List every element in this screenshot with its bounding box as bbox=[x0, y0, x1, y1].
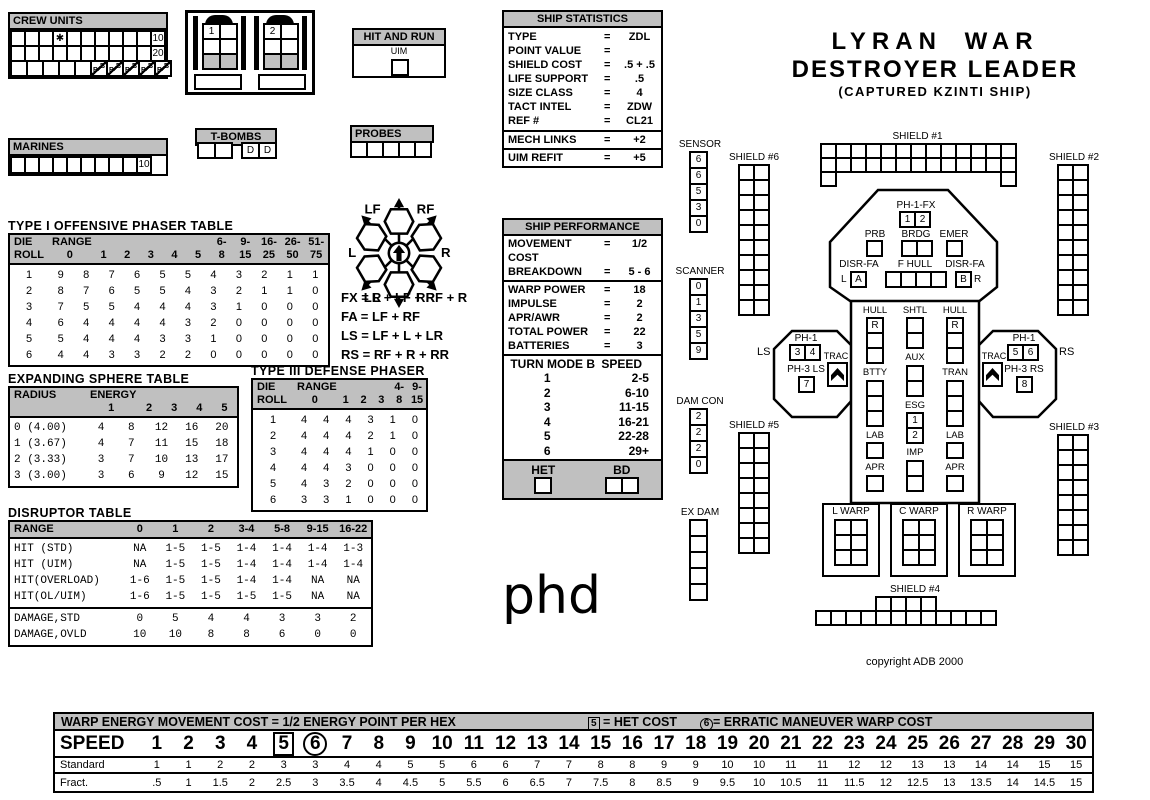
sensor-label: SENSOR bbox=[676, 139, 724, 150]
system-label: IMP bbox=[907, 448, 924, 458]
expanding-sphere-table: RADIUSENERGY123450 (4.00)481216201 (3.67… bbox=[8, 386, 239, 488]
rw-ph3-label: PH-3 RS bbox=[996, 364, 1052, 375]
shield1-label: SHIELD #1 bbox=[850, 131, 985, 142]
system-label: APR bbox=[945, 463, 965, 473]
uim-label: UIM bbox=[354, 46, 444, 56]
shield6-label: SHIELD #6 bbox=[718, 152, 790, 163]
damage-box[interactable] bbox=[1000, 171, 1017, 187]
het-label: HET bbox=[504, 463, 583, 477]
damage-box[interactable] bbox=[930, 271, 947, 288]
damage-box[interactable]: 9 bbox=[689, 342, 708, 360]
dam-con-track: 2220 bbox=[689, 408, 708, 474]
mech-links-row: MECH LINKS=+2 bbox=[504, 130, 661, 148]
ph1fx-label: PH-1-FX bbox=[868, 200, 964, 211]
system-label: HULL bbox=[863, 306, 887, 316]
probes-panel: PROBES bbox=[350, 125, 434, 158]
title-line1: LYRAN WAR bbox=[735, 28, 1135, 56]
system-label: LAB bbox=[866, 431, 884, 441]
shield5-track bbox=[738, 432, 770, 554]
erratic-maneuver-note: 6= ERRATIC MANEUVER WARP COST bbox=[700, 715, 932, 731]
hit-and-run-title: HIT AND RUN bbox=[354, 30, 444, 46]
damage-box[interactable] bbox=[946, 240, 963, 257]
performance-rows-1: MOVEMENT COST=1/2BREAKDOWN=5 - 6 bbox=[504, 236, 661, 280]
speed-header: SPEED bbox=[601, 357, 661, 371]
ssd-sheet: CREW UNITS ✱1020BBBBBBBBBB 1 2 HIT AND R… bbox=[0, 0, 1150, 800]
shuttle-ready-rack bbox=[258, 74, 306, 90]
system-label: LAB bbox=[946, 431, 964, 441]
damage-box[interactable] bbox=[753, 299, 770, 316]
shield3-track bbox=[1057, 434, 1089, 556]
ls-arc-label: LS bbox=[757, 346, 770, 358]
lw-ph3-label: PH-3 LS bbox=[778, 364, 834, 375]
hit-and-run-panel: HIT AND RUN UIM bbox=[352, 28, 446, 78]
ex-dam-track bbox=[689, 519, 708, 601]
disruptor-title: DISRUPTOR TABLE bbox=[8, 506, 132, 520]
performance-rows-2: WARP POWER=18IMPULSE=2APR/AWR=2TOTAL POW… bbox=[504, 280, 661, 354]
system-label: AUX bbox=[905, 353, 925, 363]
t-bombs-track bbox=[197, 142, 233, 159]
crew-units-title: CREW UNITS bbox=[10, 14, 166, 30]
r-warp-track bbox=[970, 519, 1004, 566]
lw-ph1-track: 34 bbox=[789, 344, 821, 361]
rw-ph1-track: 56 bbox=[1007, 344, 1039, 361]
disr-fa-right-track: B bbox=[955, 271, 972, 288]
standard-row: Standard11223344556677889910101111121213… bbox=[55, 758, 1092, 774]
handwritten-note: phd bbox=[502, 566, 601, 626]
title-line3: (CAPTURED KZINTI SHIP) bbox=[735, 84, 1135, 99]
damage-box[interactable]: A bbox=[850, 271, 867, 288]
bay-rail bbox=[254, 16, 259, 70]
warp-cost-note: WARP ENERGY MOVEMENT COST = 1/2 ENERGY P… bbox=[61, 715, 456, 729]
shield4-label: SHIELD #4 bbox=[875, 584, 955, 595]
damage-box[interactable] bbox=[918, 549, 936, 566]
emer-track bbox=[946, 240, 963, 257]
shield2-label: SHIELD #2 bbox=[1038, 152, 1110, 163]
arc-label-l: L bbox=[348, 245, 356, 260]
brdg-track bbox=[901, 240, 933, 257]
marines-title: MARINES bbox=[10, 140, 166, 156]
damage-box[interactable]: 2 bbox=[914, 211, 931, 228]
c-warp-label: C WARP bbox=[892, 506, 946, 517]
damage-box[interactable]: 0 bbox=[689, 215, 708, 233]
damage-box[interactable]: D bbox=[258, 142, 277, 159]
shield1-track bbox=[820, 143, 1017, 187]
scanner-track: 01359 bbox=[689, 278, 708, 360]
damage-box[interactable] bbox=[946, 442, 964, 459]
damage-box[interactable] bbox=[214, 142, 233, 159]
damage-box[interactable] bbox=[906, 475, 924, 492]
rs-arc-label: RS bbox=[1059, 346, 1074, 358]
damage-box[interactable]: 6 bbox=[1022, 344, 1039, 361]
damage-box[interactable]: 7 bbox=[798, 376, 815, 393]
uim-box[interactable] bbox=[391, 59, 409, 76]
damage-box[interactable] bbox=[219, 53, 238, 70]
copyright-text: copyright ADB 2000 bbox=[866, 656, 963, 668]
arc-label-rf: RF bbox=[417, 201, 435, 216]
prb-track bbox=[866, 240, 883, 257]
dam-con-label: DAM CON bbox=[672, 396, 728, 407]
damage-box[interactable] bbox=[850, 549, 868, 566]
tractor-icon bbox=[831, 368, 844, 381]
brdg-label: BRDG bbox=[894, 229, 938, 240]
boxed-5-icon: 5 bbox=[588, 717, 600, 730]
damage-box[interactable] bbox=[1072, 539, 1089, 556]
ship-performance-panel: SHIP PERFORMANCE MOVEMENT COST=1/2BREAKD… bbox=[502, 218, 663, 500]
circled-em-speed: 6 bbox=[303, 732, 327, 756]
damage-box[interactable] bbox=[820, 171, 837, 187]
marines-panel: MARINES 10 bbox=[8, 138, 168, 176]
boxed-het-speed: 5 bbox=[273, 732, 294, 756]
emer-label: EMER bbox=[934, 229, 974, 240]
damage-box[interactable] bbox=[1072, 299, 1089, 316]
formula-rs: RS = RF + R + RR bbox=[341, 345, 467, 364]
lw-ph1-label: PH-1 bbox=[786, 333, 826, 344]
speed-chart: WARP ENERGY MOVEMENT COST = 1/2 ENERGY P… bbox=[53, 712, 1094, 793]
title-line2: DESTROYER LEADER bbox=[735, 56, 1135, 84]
shield3-label: SHIELD #3 bbox=[1038, 422, 1110, 433]
damage-box[interactable] bbox=[916, 240, 933, 257]
damage-box[interactable] bbox=[621, 477, 639, 494]
rw-ph3-track: 8 bbox=[1016, 376, 1033, 393]
damage-box[interactable] bbox=[866, 240, 883, 257]
r-warp-box: R WARP bbox=[958, 503, 1016, 577]
ship-statistics-panel: SHIP STATISTICS TYPE=ZDLPOINT VALUE=SHIE… bbox=[502, 10, 663, 168]
damage-box[interactable] bbox=[946, 410, 964, 427]
damage-box: 10 bbox=[136, 156, 152, 174]
shuttle-ready-rack bbox=[194, 74, 242, 90]
bd-track bbox=[583, 477, 662, 494]
speed-chart-header: WARP ENERGY MOVEMENT COST = 1/2 ENERGY P… bbox=[55, 714, 1092, 731]
damage-box[interactable] bbox=[866, 475, 884, 492]
damage-box[interactable] bbox=[866, 442, 884, 459]
shield6-track bbox=[738, 164, 770, 316]
disr-fa-left-track: A bbox=[850, 271, 867, 288]
het-cost-note: 5 = HET COST bbox=[588, 715, 677, 730]
disr-fa-left-label: DISR-FA bbox=[837, 259, 881, 270]
system-label: HULL bbox=[943, 306, 967, 316]
f-hull-track bbox=[885, 271, 947, 288]
formula-ls: LS = LF + L + LR bbox=[341, 326, 467, 345]
crew-units-panel: CREW UNITS ✱1020BBBBBBBBBB bbox=[8, 12, 168, 79]
phaser3-title: TYPE III DEFENSE PHASER bbox=[251, 364, 425, 378]
damage-box[interactable] bbox=[534, 477, 552, 494]
t-bombs-panel: T-BOMBS DD bbox=[195, 128, 277, 146]
lw-ph3-track: 7 bbox=[798, 376, 815, 393]
bay-rail bbox=[193, 16, 198, 70]
hull-column-left: HULLRBTTYLABAPR bbox=[856, 306, 894, 492]
formula-fx: FX = L + LF + RF + R bbox=[341, 288, 467, 307]
ship-statistics-title: SHIP STATISTICS bbox=[504, 12, 661, 28]
damage-box[interactable] bbox=[866, 410, 884, 427]
ship-statistics-rows: TYPE=ZDLPOINT VALUE=SHIELD COST=.5 + .5L… bbox=[504, 28, 661, 130]
prb-label: PRB bbox=[856, 229, 894, 240]
ship-performance-title: SHIP PERFORMANCE bbox=[504, 220, 661, 236]
shield2-track bbox=[1057, 164, 1089, 316]
damage-box[interactable] bbox=[980, 610, 997, 626]
bd-label: BD bbox=[583, 463, 662, 477]
l-warp-track bbox=[834, 519, 868, 566]
damage-box[interactable] bbox=[946, 475, 964, 492]
disruptor-table: RANGE0123-45-89-1516-22HIT (STD)NA1-51-5… bbox=[8, 520, 373, 647]
rw-ph1-label: PH-1 bbox=[1004, 333, 1044, 344]
l-warp-label: L WARP bbox=[824, 506, 878, 517]
circled-6-icon: 6 bbox=[700, 718, 713, 731]
probes-track bbox=[350, 141, 434, 158]
system-label: SHTL bbox=[903, 306, 927, 316]
speed-row: SPEED12345678910111213141516171819202122… bbox=[55, 731, 1092, 758]
bay-rail bbox=[241, 16, 246, 70]
sheet-title: LYRAN WAR DESTROYER LEADER (CAPTURED KZI… bbox=[735, 28, 1135, 99]
damage-box[interactable] bbox=[986, 549, 1004, 566]
damage-box[interactable] bbox=[906, 332, 924, 349]
disr-fa-right-label: DISR-FA bbox=[943, 259, 987, 270]
r-warp-label: R WARP bbox=[960, 506, 1014, 517]
c-warp-track bbox=[902, 519, 936, 566]
hull-column-right: HULLRTRANLABAPR bbox=[936, 306, 974, 492]
lw-trac-label: TRAC bbox=[818, 352, 854, 362]
het-track bbox=[504, 477, 583, 494]
shuttle-bay: 1 2 bbox=[185, 10, 315, 95]
system-label: APR bbox=[865, 463, 885, 473]
crew-units-track: ✱1020BBBBBBBBBB bbox=[10, 30, 166, 77]
arc-formulas: FX = L + LF + RF + R FA = LF + RF LS = L… bbox=[341, 288, 467, 364]
scanner-label: SCANNER bbox=[672, 266, 728, 277]
formula-fa: FA = LF + RF bbox=[341, 307, 467, 326]
system-label: ESG bbox=[905, 401, 925, 411]
hull-column-center: SHTLAUXESG12IMP bbox=[896, 306, 934, 492]
damage-box[interactable] bbox=[906, 380, 924, 397]
damage-box[interactable]: 2 bbox=[906, 427, 924, 444]
damage-box[interactable] bbox=[753, 537, 770, 554]
bay-rail bbox=[302, 16, 307, 70]
c-warp-box: C WARP bbox=[890, 503, 948, 577]
ex-dam-label: EX DAM bbox=[672, 507, 728, 518]
marines-track: 10 bbox=[10, 156, 166, 174]
fract-row: Fract..511.522.533.544.555.566.577.588.5… bbox=[55, 774, 1092, 791]
shield4-bottom-track bbox=[815, 610, 997, 626]
turn-mode-table: TURN MODE B SPEED 12-526-10311-15416-215… bbox=[504, 354, 661, 459]
uim-refit-row: UIM REFIT=+5 bbox=[504, 148, 661, 166]
damage-box[interactable] bbox=[414, 141, 432, 158]
disr-fa-right-letter: R bbox=[974, 274, 981, 285]
l-warp-box: L WARP bbox=[822, 503, 880, 577]
damage-box[interactable]: BB bbox=[154, 60, 172, 77]
shield5-label: SHIELD #5 bbox=[718, 420, 790, 431]
damage-box[interactable] bbox=[280, 53, 299, 70]
shuttle-1-track: 1 bbox=[202, 23, 238, 70]
het-bd-footer: HET BD bbox=[504, 459, 661, 498]
damage-box[interactable] bbox=[689, 583, 708, 601]
turn-mode-header: TURN MODE B bbox=[504, 357, 601, 371]
phaser1-table: DIERANGE6-9-16-26-51-ROLL012345815255075… bbox=[8, 233, 330, 367]
expanding-sphere-title: EXPANDING SPHERE TABLE bbox=[8, 372, 189, 386]
system-label: BTTY bbox=[863, 368, 887, 378]
phaser3-table: DIERANGE4-9-ROLL012381514443102444210344… bbox=[251, 378, 428, 512]
disr-fa-left-letter: L bbox=[841, 274, 847, 285]
damage-box[interactable] bbox=[946, 347, 964, 364]
damage-box[interactable] bbox=[866, 347, 884, 364]
ph1fx-track: 12 bbox=[899, 211, 931, 228]
system-label: TRAN bbox=[942, 368, 968, 378]
phaser1-title: TYPE I OFFENSIVE PHASER TABLE bbox=[8, 219, 233, 233]
f-hull-label: F HULL bbox=[884, 259, 946, 270]
sensor-track: 66530 bbox=[689, 151, 708, 233]
damage-box[interactable]: 8 bbox=[1016, 376, 1033, 393]
arc-label-lf: LF bbox=[364, 201, 380, 216]
shuttle-2-track: 2 bbox=[263, 23, 299, 70]
lw-trac-box[interactable] bbox=[827, 362, 848, 387]
arc-label-r: R bbox=[441, 245, 451, 260]
t-bombs-dummy-track: DD bbox=[241, 142, 277, 159]
damage-box[interactable]: B bbox=[955, 271, 972, 288]
damage-box[interactable]: 0 bbox=[689, 456, 708, 474]
